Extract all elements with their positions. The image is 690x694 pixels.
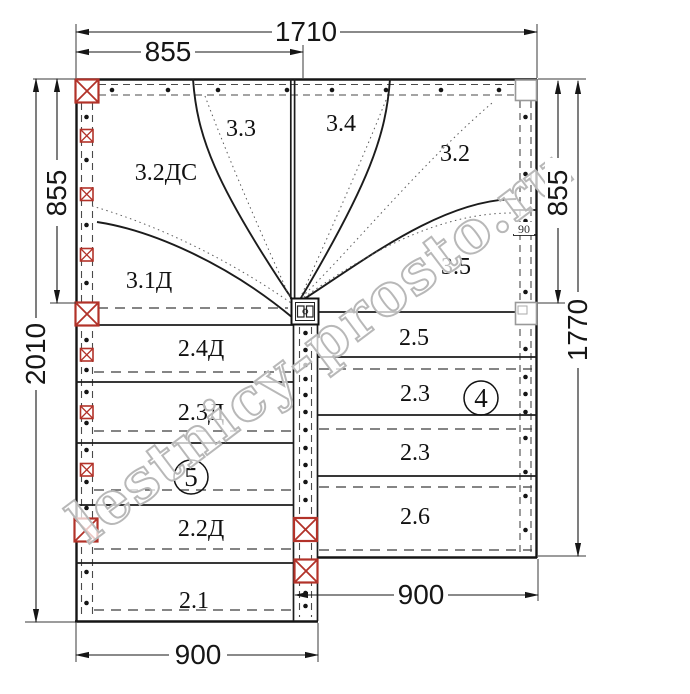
- label-2-5: 2.5: [399, 325, 429, 351]
- fastener-dot: [523, 347, 528, 352]
- fastener-dot: [84, 601, 89, 606]
- post-marker-large: [295, 560, 318, 583]
- post-marker-small: [81, 130, 94, 143]
- label-3-3: 3.3: [226, 116, 256, 142]
- fastener-dot: [216, 88, 221, 93]
- fastener-dot: [523, 375, 528, 380]
- fastener-dot: [523, 410, 528, 415]
- dim-top-half: 855: [145, 36, 192, 67]
- post-marker-large: [294, 518, 317, 541]
- fastener-dot: [110, 88, 115, 93]
- fastener-dot: [84, 448, 89, 453]
- post-marker-small: [81, 249, 94, 262]
- dim-left-upper: 855: [41, 170, 72, 217]
- fastener-dot: [303, 480, 308, 485]
- label-3-2: 3.2: [440, 141, 470, 167]
- corner-post-top-right: [516, 80, 537, 101]
- fastener-dot: [84, 223, 89, 228]
- label-2-6: 2.6: [400, 504, 430, 530]
- dim-bottom-right: 900: [398, 579, 445, 610]
- staircase-plan-drawing: 3.2ДС 3.3 3.4 3.2 3.1Д 3.5 2.4Д 2.5 2.3Д…: [0, 0, 690, 694]
- fastener-dot: [497, 88, 502, 93]
- fastener-dot: [523, 290, 528, 295]
- label-3-2dc: 3.2ДС: [135, 160, 197, 186]
- fastener-dot: [84, 338, 89, 343]
- fastener-dot: [84, 421, 89, 426]
- fastener-dot: [285, 88, 290, 93]
- fastener-dot: [330, 88, 335, 93]
- label-3-4: 3.4: [326, 111, 356, 137]
- fastener-dot: [84, 158, 89, 163]
- label-2-3-lower: 2.3: [400, 440, 430, 466]
- fastener-dot: [84, 115, 89, 120]
- fastener-dot: [303, 604, 308, 609]
- post-marker-large: [76, 80, 99, 103]
- fastener-dot: [523, 494, 528, 499]
- post-marker-large: [76, 303, 99, 326]
- fastener-dot: [303, 410, 308, 415]
- fastener-dot: [303, 498, 308, 503]
- dim-stringer-mini: 90: [518, 222, 530, 236]
- post-marker-small: [81, 188, 94, 201]
- fastener-dot: [523, 115, 528, 120]
- fastener-dot: [523, 528, 528, 533]
- post-marker-small: [81, 349, 94, 362]
- label-2-1: 2.1: [179, 588, 209, 614]
- label-3-1d: 3.1Д: [126, 268, 172, 294]
- dim-right-upper: 855: [542, 170, 573, 217]
- flight-marker-4: 4: [464, 381, 498, 415]
- label-2-3-upper: 2.3: [400, 381, 430, 407]
- staircase-plan-page: 3.2ДС 3.3 3.4 3.2 3.1Д 3.5 2.4Д 2.5 2.3Д…: [0, 0, 690, 694]
- fastener-dot: [303, 446, 308, 451]
- fastener-dot: [84, 390, 89, 395]
- fastener-dot: [84, 281, 89, 286]
- fastener-dot: [303, 463, 308, 468]
- landing-post-right: [516, 303, 537, 325]
- fastener-dot: [84, 570, 89, 575]
- dim-right-total: 1770: [562, 299, 593, 361]
- label-2-2d: 2.2Д: [178, 516, 224, 542]
- fastener-dot: [523, 392, 528, 397]
- label-2-4d: 2.4Д: [178, 336, 224, 362]
- fastener-dot: [84, 368, 89, 373]
- watermark-text: lestnicy-prosto.ru: [55, 134, 584, 556]
- fastener-dot: [384, 88, 389, 93]
- fastener-dot: [166, 88, 171, 93]
- fastener-dot: [439, 88, 444, 93]
- post-marker-small: [81, 406, 94, 419]
- dim-top-total: 1710: [275, 16, 337, 47]
- fastener-dot: [523, 436, 528, 441]
- fastener-dot: [303, 428, 308, 433]
- dim-bottom-left: 900: [175, 639, 222, 670]
- fastener-dot: [523, 470, 528, 475]
- dim-left-total: 2010: [20, 323, 51, 385]
- flight-number-right: 4: [474, 383, 488, 413]
